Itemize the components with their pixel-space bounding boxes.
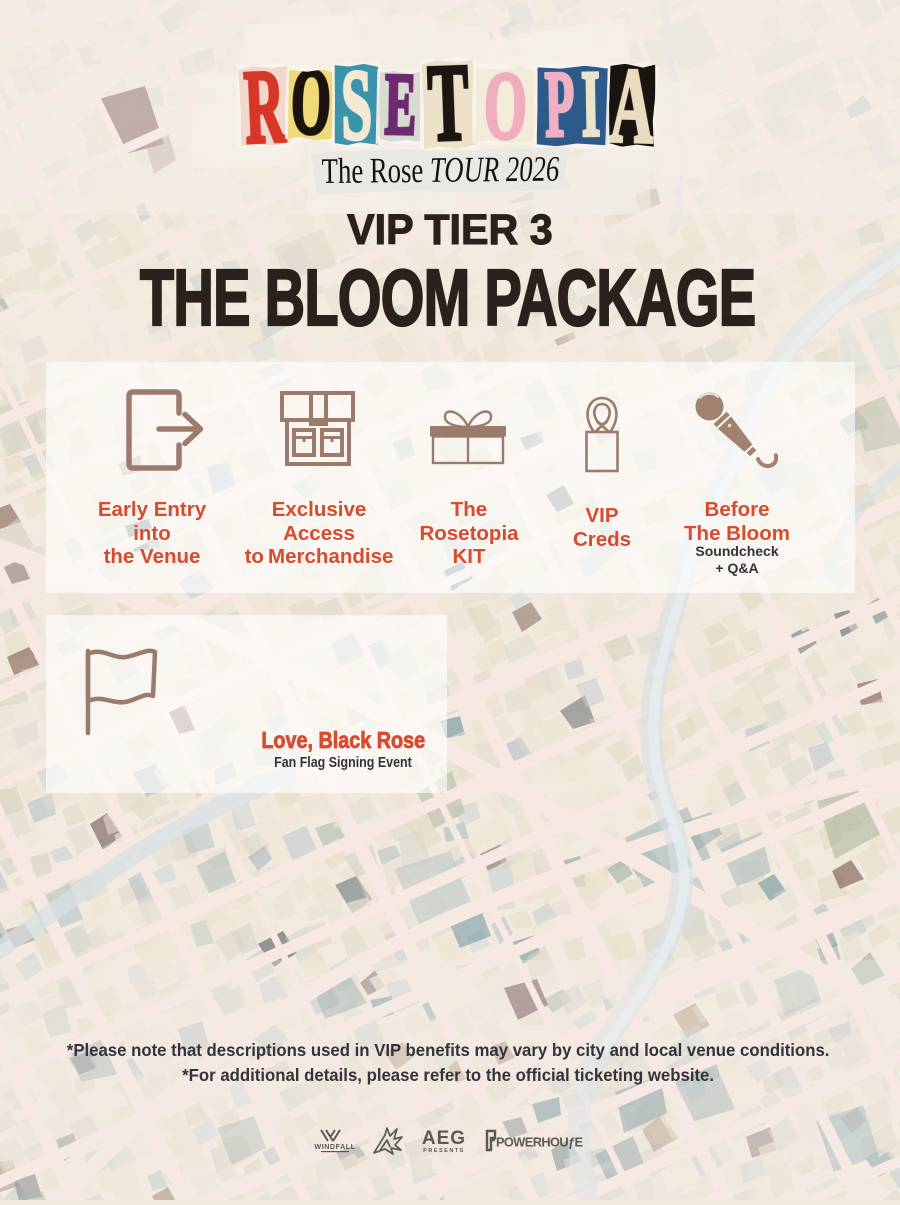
svg-text:POWERHOUƒE: POWERHOUƒE [496, 1135, 583, 1150]
svg-text:WINDFALL: WINDFALL [314, 1142, 355, 1151]
svg-text:AEG: AEG [422, 1128, 466, 1149]
svg-text:PRESENTS: PRESENTS [423, 1148, 465, 1154]
